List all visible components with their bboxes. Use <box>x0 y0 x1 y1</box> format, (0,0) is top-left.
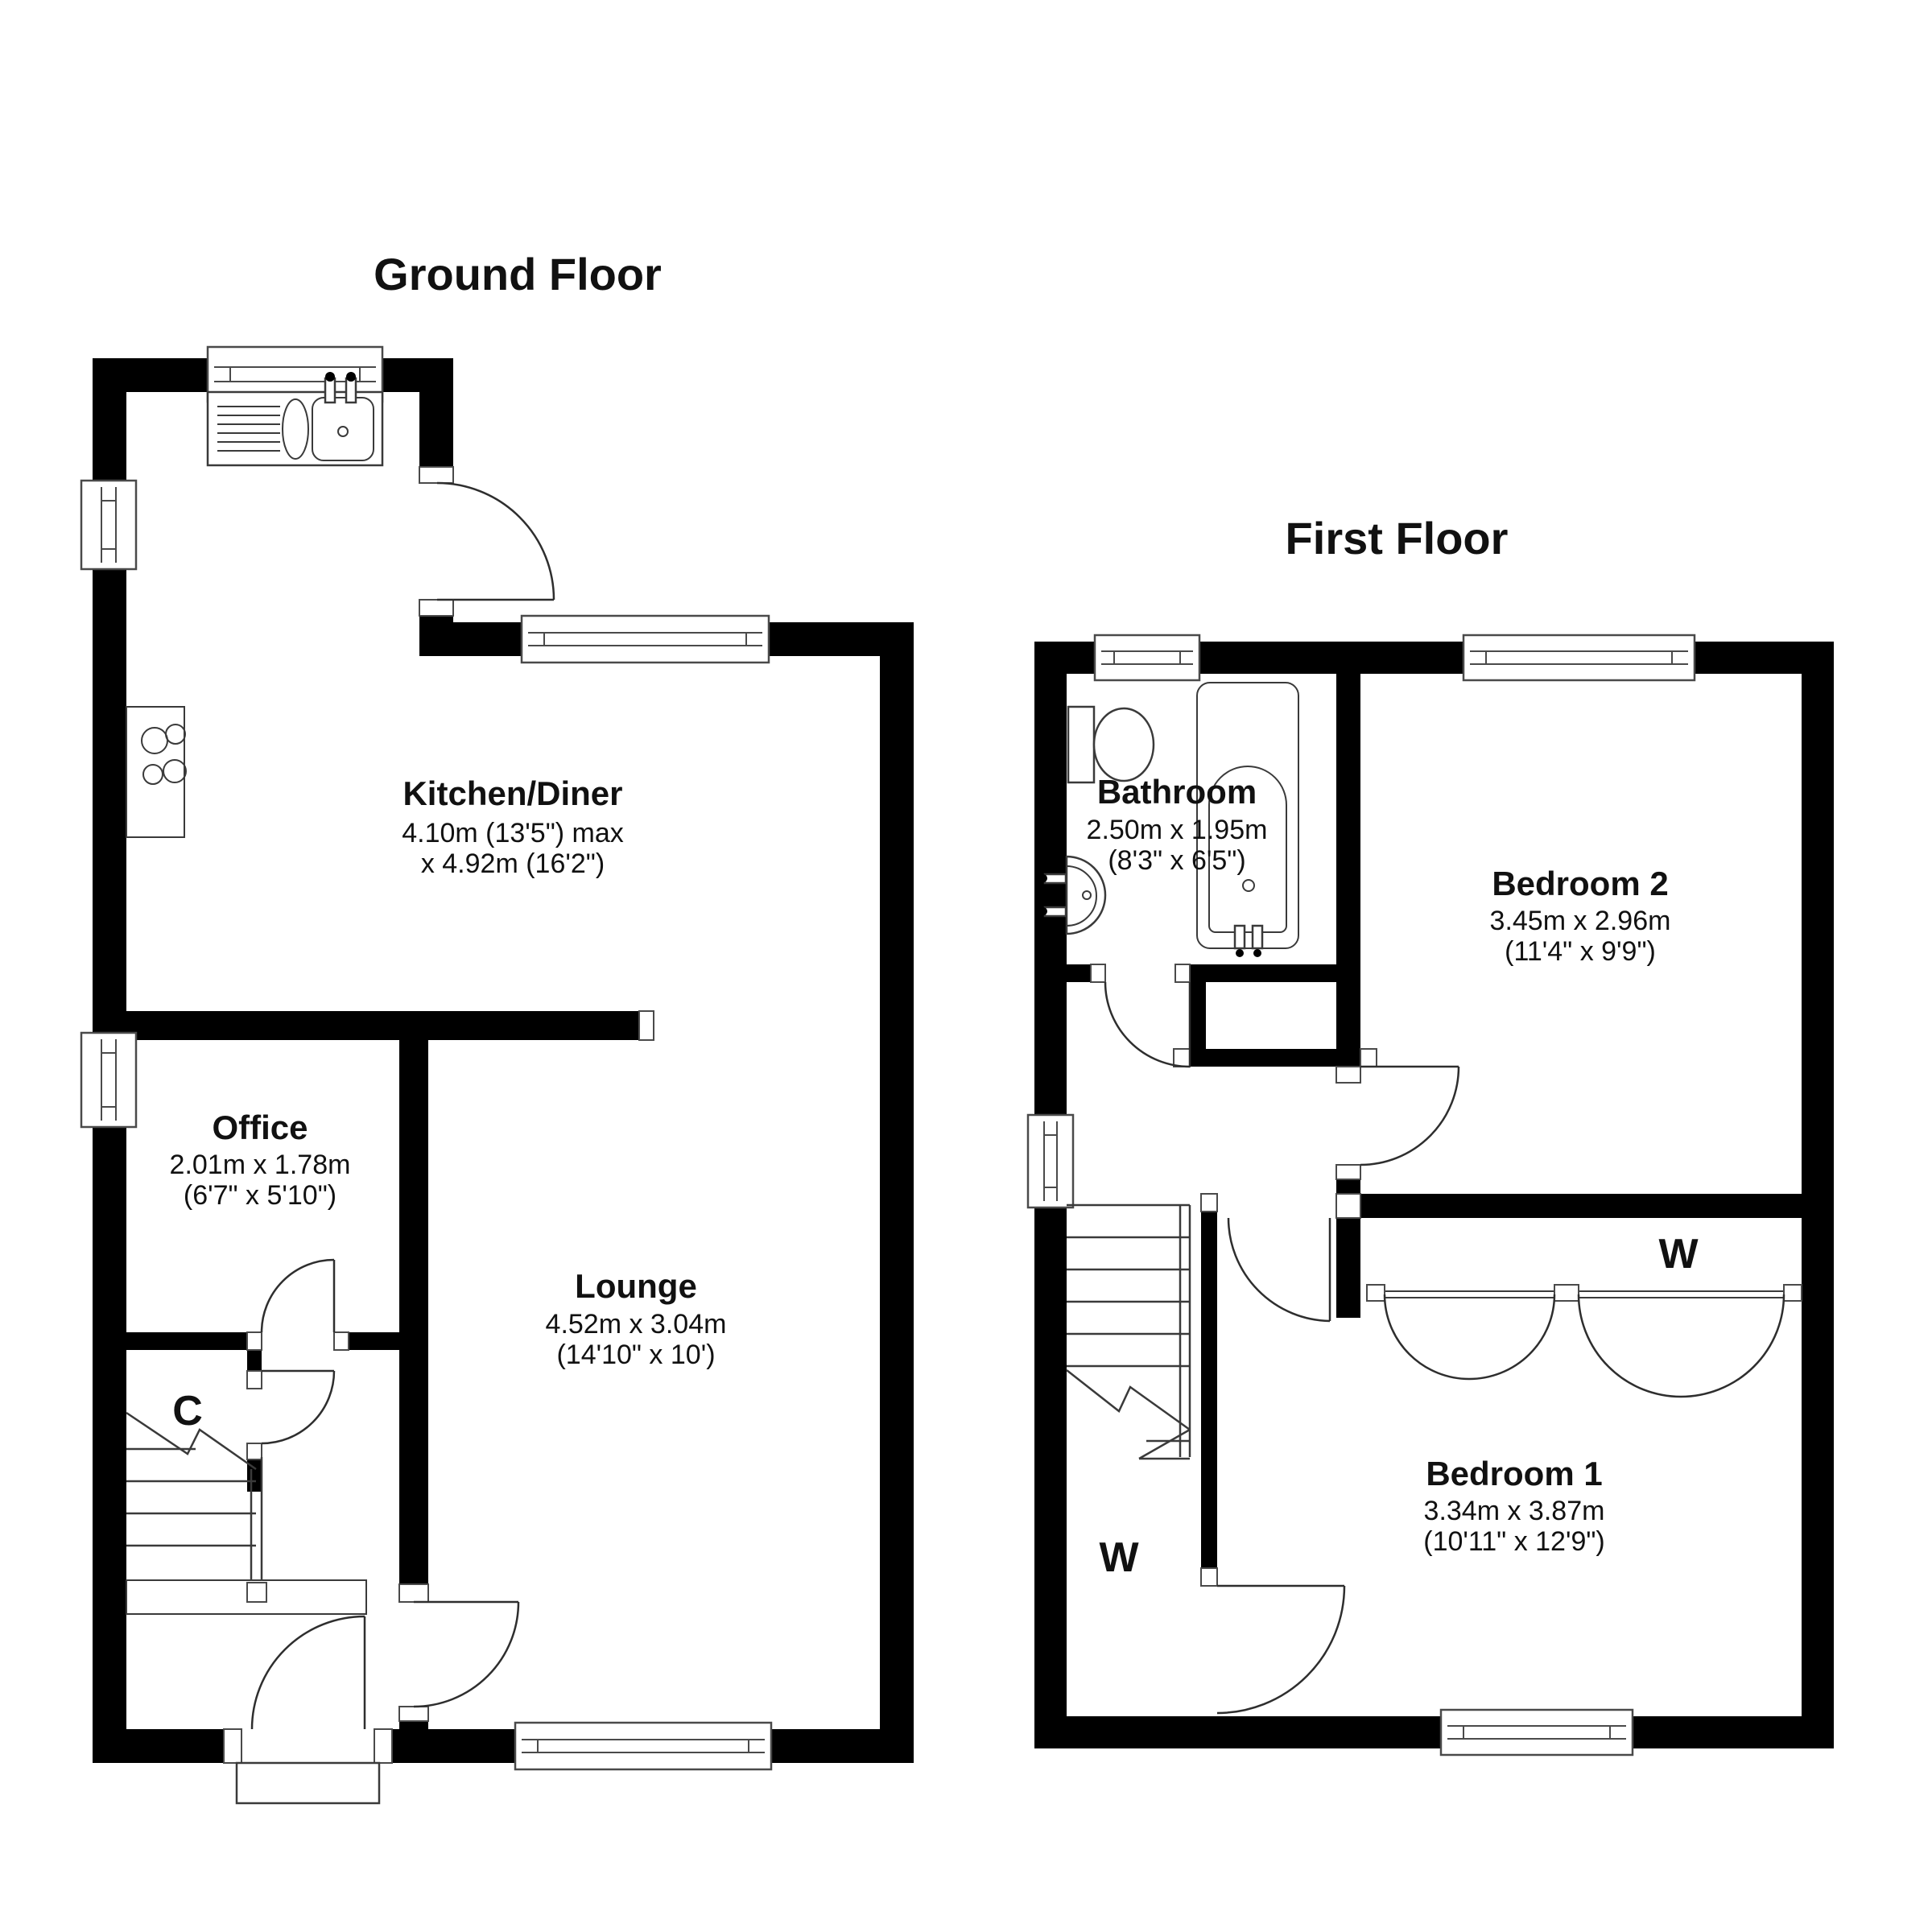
bedroom1-dim1: 3.34m x 3.87m <box>1424 1496 1605 1526</box>
wall-bottom <box>1034 1716 1834 1748</box>
window-landing-left <box>1028 1115 1073 1207</box>
bathroom-dim2: (8'3" x 6'5") <box>1108 845 1245 876</box>
bedroom2-dim2: (11'4" x 9'9") <box>1505 936 1656 967</box>
stairs-newel <box>247 1583 266 1602</box>
lounge-dim1: 4.52m x 3.04m <box>546 1309 727 1340</box>
burner <box>163 760 186 782</box>
window-lounge-bottom <box>515 1723 771 1769</box>
office-dim1: 2.01m x 1.78m <box>170 1150 351 1180</box>
tap <box>1045 907 1066 916</box>
kitchen-label: Kitchen/Diner <box>402 774 622 812</box>
wardrobe-double-doors-left <box>1385 1294 1554 1379</box>
wall-stairs <box>1201 1212 1217 1568</box>
wardrobe-double-doors-right <box>1579 1294 1784 1397</box>
first-floor-labels: Bathroom 2.50m x 1.95m (8'3" x 6'5") Bed… <box>1087 773 1699 1581</box>
closet-front-left <box>1385 1291 1554 1298</box>
tap <box>325 378 335 402</box>
jamb <box>1554 1285 1579 1301</box>
jamb <box>374 1729 392 1763</box>
ground-floor-walls <box>93 358 914 1763</box>
kitchen-dim1: 4.10m (13'5") max <box>402 818 624 848</box>
bedroom1-label: Bedroom 1 <box>1426 1455 1602 1492</box>
window-bedroom2-top <box>1463 635 1695 680</box>
wall-cupboard-left <box>1190 964 1206 1067</box>
window-kitchen-left <box>81 481 136 569</box>
jamb <box>1174 1049 1190 1067</box>
window-office-left <box>81 1033 136 1127</box>
ground-floor-title: Ground Floor <box>374 249 662 299</box>
jamb <box>419 600 453 616</box>
wall-kitchen-right <box>419 358 453 467</box>
front-door-threshold <box>237 1763 379 1803</box>
tap <box>1253 926 1262 948</box>
toilet-cistern <box>1068 707 1094 782</box>
floorplan-canvas: Ground Floor <box>0 0 1932 1932</box>
tap <box>1045 874 1066 883</box>
wall-office-south-right <box>349 1332 399 1350</box>
wardrobe-bedroom1-label: W <box>1658 1231 1699 1278</box>
lounge-dim2: (14'10" x 10') <box>556 1340 715 1370</box>
burner <box>143 765 163 784</box>
wall-office-south-left <box>126 1332 247 1350</box>
door-bedroom2 <box>1360 1067 1459 1165</box>
toilet-bowl <box>1094 708 1154 781</box>
window-lounge-top <box>522 616 769 663</box>
burner <box>142 728 167 753</box>
first-floor-title: First Floor <box>1286 513 1509 563</box>
first-floor-plan: First Floor <box>1028 513 1834 1755</box>
door-office <box>262 1260 334 1332</box>
jamb <box>1336 1165 1360 1179</box>
wall-bathroom-south-stub <box>1067 964 1091 982</box>
stairs-break-line <box>1067 1370 1190 1430</box>
wall-cupboard-stub-top <box>247 1350 262 1371</box>
window-bedroom1-bottom <box>1441 1710 1633 1755</box>
jamb <box>419 467 453 483</box>
wall-right <box>1802 642 1834 1748</box>
wall-cupboard-top <box>1190 964 1336 982</box>
jamb <box>247 1443 262 1459</box>
bedroom2-label: Bedroom 2 <box>1492 865 1668 902</box>
door-landing <box>1228 1218 1330 1321</box>
lounge-label: Lounge <box>575 1267 697 1305</box>
tap <box>1235 926 1245 948</box>
jamb <box>334 1332 349 1350</box>
toilet <box>1068 707 1154 782</box>
ground-floor-plan: Ground Floor <box>81 249 914 1803</box>
drain <box>1243 880 1254 891</box>
jamb <box>1360 1049 1377 1067</box>
jamb <box>247 1332 262 1350</box>
wall-right <box>880 622 914 1763</box>
cupboard-label: C <box>172 1388 203 1435</box>
wall-bathroom-east <box>1336 674 1360 1067</box>
bathroom-dim1: 2.50m x 1.95m <box>1087 815 1268 845</box>
bathroom-label: Bathroom <box>1097 773 1257 811</box>
wardrobe-landing-label: W <box>1099 1534 1139 1581</box>
door-front <box>237 1616 379 1803</box>
jamb <box>1784 1285 1802 1301</box>
jamb <box>1336 1067 1360 1083</box>
first-floor-stairs <box>1067 1205 1190 1459</box>
jamb <box>224 1729 242 1763</box>
jamb <box>1201 1568 1217 1586</box>
door-bedroom1 <box>1217 1586 1344 1713</box>
wall-bottom-left <box>93 1729 242 1763</box>
wall-cupboard-bottom <box>1190 1049 1336 1067</box>
tap <box>346 378 356 402</box>
jamb <box>399 1707 428 1721</box>
bedroom1-dim2: (10'11" x 12'9") <box>1423 1526 1605 1557</box>
burner <box>166 724 185 744</box>
wall-partition-upper <box>399 1011 428 1602</box>
kitchen-dim2: x 4.92m (16'2") <box>421 848 605 879</box>
jamb <box>399 1584 428 1602</box>
jamb <box>1367 1285 1385 1301</box>
wall-bedroom2-south <box>1360 1194 1802 1218</box>
wall-office-north <box>126 1011 654 1040</box>
jamb <box>1336 1194 1360 1218</box>
kitchen-hob <box>126 707 186 837</box>
door-lounge <box>414 1602 518 1707</box>
door-cupboard <box>262 1371 334 1443</box>
jamb <box>247 1371 262 1389</box>
jamb <box>1201 1194 1217 1212</box>
window-bathroom-top <box>1095 635 1199 680</box>
jamb <box>1175 964 1190 982</box>
office-dim2: (6'7" x 5'10") <box>184 1180 336 1211</box>
jamb <box>639 1011 654 1040</box>
door-kitchen <box>437 483 554 600</box>
closet-front-right <box>1579 1291 1784 1298</box>
office-label: Office <box>212 1108 308 1146</box>
bedroom2-dim1: 3.45m x 2.96m <box>1490 906 1671 936</box>
jamb <box>1091 964 1105 982</box>
